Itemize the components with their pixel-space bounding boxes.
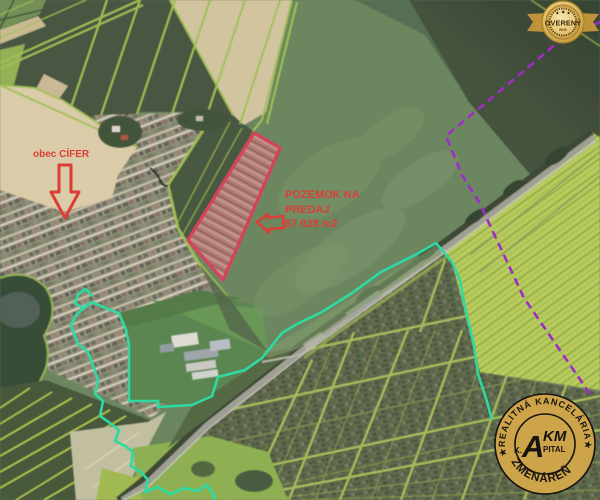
svg-text:RKIS: RKIS bbox=[559, 28, 567, 32]
svg-text:KM: KM bbox=[543, 428, 567, 445]
svg-text:OVERENÝ: OVERENÝ bbox=[545, 19, 582, 28]
svg-text:57 028 m2: 57 028 m2 bbox=[285, 218, 338, 230]
svg-text:PITAL: PITAL bbox=[543, 445, 566, 454]
svg-text:K.: K. bbox=[514, 446, 522, 455]
svg-text:A: A bbox=[521, 429, 544, 464]
svg-text:POZEMOK NA: POZEMOK NA bbox=[285, 189, 360, 201]
svg-text:obec CÍFER: obec CÍFER bbox=[33, 147, 90, 160]
svg-text:PREDAJ: PREDAJ bbox=[285, 204, 330, 216]
